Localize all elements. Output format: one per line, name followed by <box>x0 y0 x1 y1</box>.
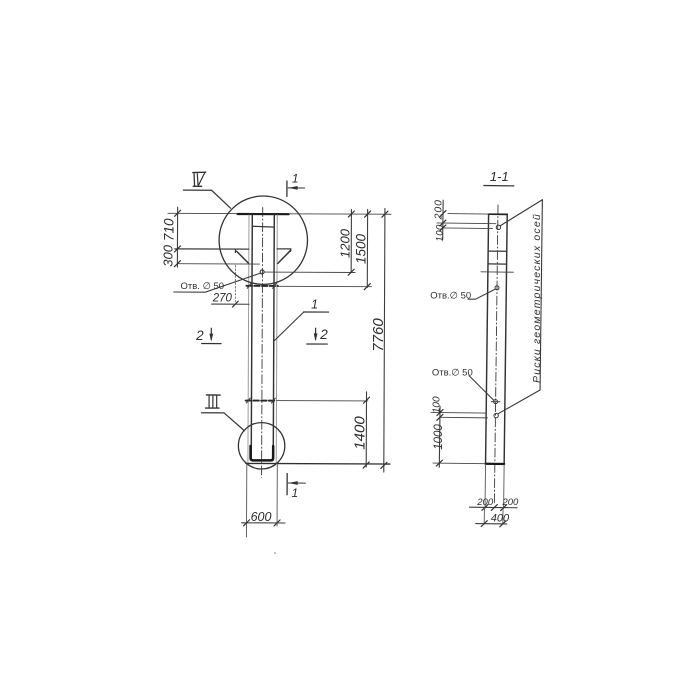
svg-text:300: 300 <box>160 244 175 266</box>
svg-text:2: 2 <box>195 328 204 343</box>
svg-text:200: 200 <box>432 199 444 220</box>
svg-text:Отв. ∅ 50: Отв. ∅ 50 <box>181 281 225 292</box>
svg-text:1200: 1200 <box>338 228 353 258</box>
svg-text:600: 600 <box>251 510 272 524</box>
svg-text:100: 100 <box>435 224 446 242</box>
svg-text:1400: 1400 <box>351 416 368 450</box>
svg-text:710: 710 <box>162 218 177 241</box>
svg-text:1: 1 <box>292 172 299 186</box>
svg-text:Отв.∅ 50: Отв.∅ 50 <box>432 367 473 378</box>
svg-text:2: 2 <box>319 327 328 342</box>
svg-text:1: 1 <box>311 298 318 312</box>
svg-text:200: 200 <box>501 497 519 508</box>
svg-text:1500: 1500 <box>353 233 368 264</box>
svg-text:1: 1 <box>291 486 298 500</box>
svg-text:1-1: 1-1 <box>490 169 509 184</box>
svg-text:200: 200 <box>476 497 494 508</box>
svg-text:100: 100 <box>431 396 442 413</box>
svg-text:Отв.∅ 50: Отв.∅ 50 <box>430 291 471 302</box>
svg-text:1000: 1000 <box>433 424 445 450</box>
svg-text:Риски геометрических осей: Риски геометрических осей <box>531 213 543 383</box>
svg-text:400: 400 <box>491 512 510 524</box>
svg-text:270: 270 <box>212 293 233 305</box>
svg-text:7760: 7760 <box>370 318 387 352</box>
